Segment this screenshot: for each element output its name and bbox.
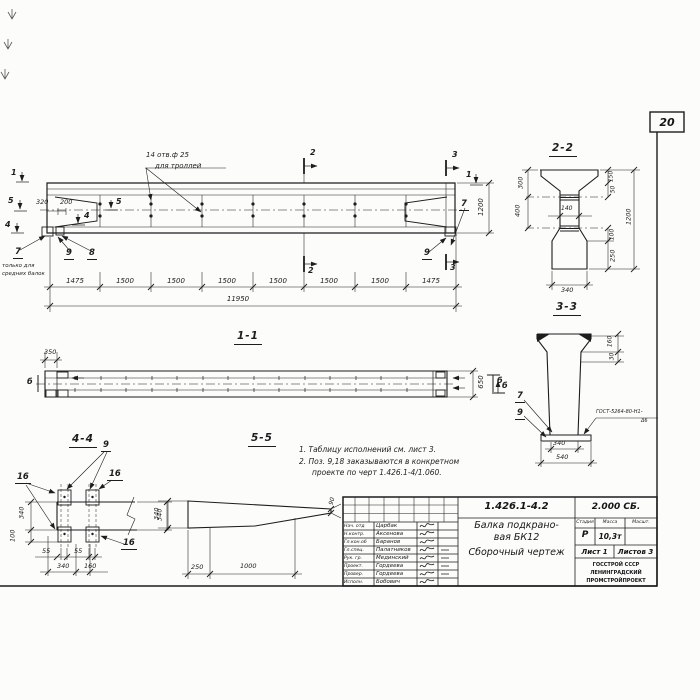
dim-140: 140 (561, 206, 572, 213)
staff-name-6: Гордеева (376, 571, 403, 577)
dim-55-b: 55 (74, 548, 82, 555)
dim-340-sec33: 340 (553, 440, 565, 447)
pos-9: 9 (64, 249, 74, 260)
doc-title-line1: Балка подкрано- (458, 520, 575, 531)
dim-chain-4: 1500 (265, 277, 291, 285)
staff-name-4: Мединский (376, 555, 409, 561)
dim-300: 300 (517, 168, 524, 198)
dim-chain-1: 1500 (112, 277, 138, 285)
dim-340-v44-bottom: 340 (57, 563, 69, 570)
cut-mark-1-left: 1 (11, 169, 17, 177)
pos-9-sec33: 9 (515, 409, 525, 420)
pos-8: 8 (87, 249, 97, 260)
dim-250: 250 (609, 241, 616, 271)
cut-mark-b-sec33: б (502, 382, 508, 390)
dim-160-v44: 160 (84, 563, 96, 570)
weld-note-line2: Δ6 (641, 419, 648, 425)
staff-role-2: Гл.кон.об (344, 540, 367, 545)
dim-320: 320 (36, 199, 48, 206)
col-stage: Стадия (575, 520, 595, 525)
drawing-linework (0, 0, 700, 700)
staff-name-0: Царбак (376, 523, 397, 529)
doc-title-line3: Сборочный чертеж (458, 547, 575, 558)
holes-note-line1: 14 отв.ф 25 (146, 151, 189, 159)
org-line3: ПРОМСТРОЙПРОЕКТ (575, 578, 657, 584)
note-line-3: проекте по черт 1.426.1-4/1.060. (312, 469, 442, 478)
dim-chain-5: 1500 (316, 277, 342, 285)
stage-value: Р (575, 530, 595, 540)
sheets-info: Листов 3 (614, 548, 657, 556)
staff-role-5: Проект. (344, 564, 363, 569)
cut-mark-1-right: 1 (466, 171, 472, 179)
org-line2: ЛЕНИНГРАДСКИЙ (575, 570, 657, 576)
pos-7-right: 7 (459, 200, 469, 211)
dim-100-v44: 100 (9, 521, 16, 551)
view-label-5-5: 5-5 (248, 433, 276, 447)
cut-mark-3-top: 3 (452, 151, 458, 159)
dim-340-v55: 340 (153, 499, 160, 529)
cut-mark-2-top: 2 (310, 149, 316, 157)
note-line-2: 2. Поз. 9,18 заказываются в конкретном (299, 458, 459, 467)
staff-role-3: Гл.спец. (344, 548, 364, 553)
main-elevation-view (11, 158, 494, 312)
view-1-1 (36, 352, 500, 400)
only-note-line1: только для (2, 263, 34, 269)
col-mass: Масса (595, 520, 625, 525)
dim-chain-3: 1500 (214, 277, 240, 285)
dim-1200-main: 1200 (477, 192, 485, 222)
cut-mark-2-bottom: 2 (308, 267, 314, 275)
dim-chain-0: 1475 (62, 277, 88, 285)
dim-total: 11950 (222, 295, 254, 303)
dim-1000: 1000 (240, 563, 257, 570)
dim-30: 30 (610, 341, 617, 371)
only-note-line2: средних балок (2, 271, 45, 277)
cut-mark-4-left: 4 (5, 221, 11, 229)
signatures (420, 524, 449, 583)
dim-1200-sec: 1200 (625, 202, 632, 232)
doc-code: 1.426.1-4.2 (458, 501, 575, 512)
pos-9-v44: 9 (101, 441, 111, 452)
pos-16-a: 16 (15, 473, 31, 484)
org-line1: ГОССТРОЙ СССР (575, 562, 657, 568)
staff-name-5: Гордеева (376, 563, 403, 569)
dim-340-sec22: 340 (561, 287, 573, 294)
pos-16-b: 16 (107, 470, 123, 481)
doc-series: 2.000 СБ. (575, 502, 657, 512)
dim-340-v44-left: 340 (18, 498, 25, 528)
dim-540: 540 (556, 454, 568, 461)
dim-chain-2: 1500 (163, 277, 189, 285)
cut-mark-5: 5 (116, 198, 122, 206)
note-line-1: 1. Таблицу исполнений см. лист 3. (299, 446, 436, 455)
dim-650: 650 (477, 367, 485, 397)
weld-note-line1: ГОСТ-5264-80-Н1- (596, 410, 643, 416)
staff-role-6: Провер. (344, 572, 363, 577)
staff-name-7: Бобович (376, 579, 400, 585)
staff-role-4: Рук. гр. (344, 556, 362, 561)
cut-mark-b-left: б (27, 378, 33, 386)
pos-7: 7 (13, 248, 23, 259)
staff-name-2: Баранов (376, 539, 400, 545)
dim-50: 50 (611, 174, 618, 204)
dim-chain-6: 1500 (367, 277, 393, 285)
staff-name-3: Палатников (376, 547, 411, 553)
doc-title-line2: вая БК12 (458, 532, 575, 543)
dim-250-v55: 250 (191, 564, 203, 571)
dim-chain-7: 1475 (418, 277, 444, 285)
view-label-4-4: 4-4 (69, 434, 97, 448)
dim-55-a: 55 (42, 548, 50, 555)
staff-role-0: Нач. отд (344, 524, 365, 529)
dim-400: 400 (514, 196, 521, 226)
section-label-2-2: 2-2 (549, 143, 577, 157)
col-scale: Масшт. (625, 520, 657, 525)
staff-name-1: Аксенова (376, 531, 403, 537)
staff-role-7: Исполн. (344, 580, 363, 585)
dim-350: 350 (44, 349, 56, 356)
drawing-sheet: 14 отв.ф 25 для троллей 320 200 5 4 1 5 … (0, 0, 700, 700)
pos-7-sec33: 7 (515, 392, 525, 403)
view-4-4 (25, 452, 172, 576)
dim-200: 200 (60, 199, 72, 206)
pos-16-c: 16 (121, 539, 137, 550)
corner-marks (1, 9, 16, 79)
staff-role-1: Н.контр. (344, 532, 365, 537)
cut-mark-5-left: 5 (8, 197, 14, 205)
cut-mark-4: 4 (84, 212, 90, 220)
sheet-info: Лист 1 (575, 548, 614, 556)
section-2-2 (522, 167, 640, 290)
view-label-1-1: 1-1 (234, 331, 262, 345)
mass-value: 10,3т (595, 532, 625, 541)
section-label-3-3: 3-3 (553, 302, 581, 316)
pos-9-right: 9 (422, 249, 432, 260)
cut-mark-3-bottom: 3 (450, 264, 456, 272)
holes-note-line2: для троллей (155, 162, 201, 170)
page-number: 20 (650, 116, 684, 129)
